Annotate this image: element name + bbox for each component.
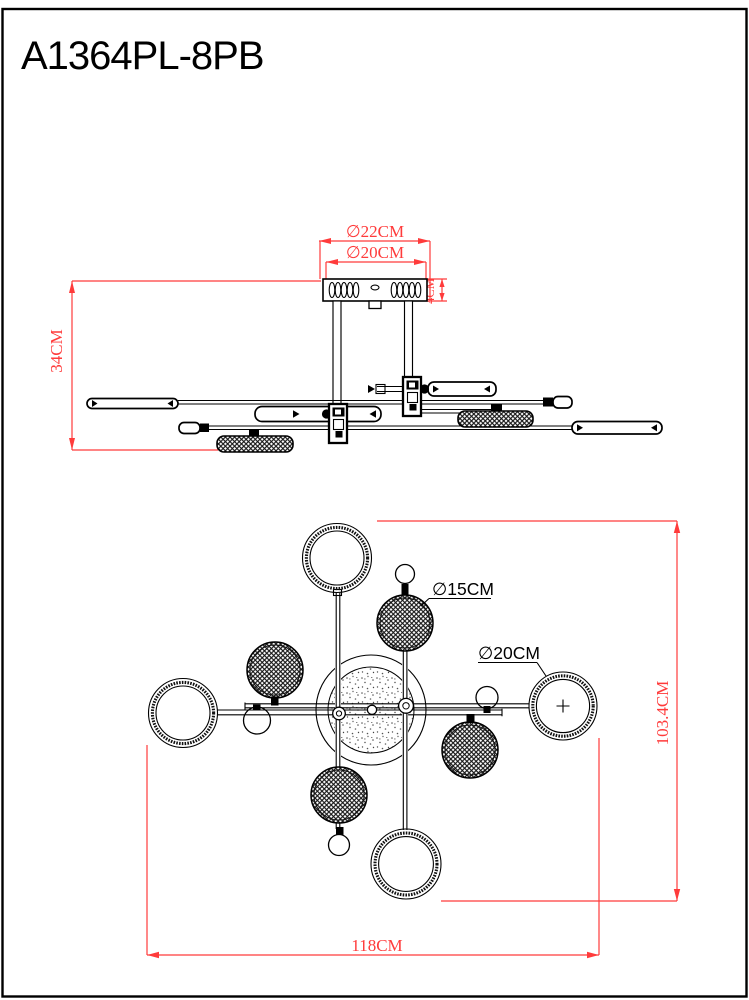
ring-top [303,524,372,593]
dim-plan-height-label: 103.4CM [653,681,672,746]
label-mesh-diameter: ∅15CM [432,579,494,599]
mesh-left-knob [271,697,279,706]
leader-ring-diameter [478,663,546,677]
dim-plan-width-label: 118CM [351,936,402,955]
ring-left [149,679,218,748]
side-view-dimensions: ∅22CM ∅20CM 4CM 34CM [47,222,447,450]
ring-center-mark [557,700,570,713]
dim-canopy-inner-label: ∅20CM [346,243,404,262]
drawing-page: A1364PL-8PB ∅22CM ∅20CM 4CM 34CM [0,0,749,1000]
side-view: ∅22CM ∅20CM 4CM 34CM [47,222,662,452]
side-hub-left [322,404,347,443]
leader-mesh-diameter [421,599,491,607]
dim-drop-label: 34CM [47,329,66,372]
label-ring-diameter: ∅20CM [478,643,540,663]
dim-canopy-outer-label: ∅22CM [346,222,404,241]
ring-right [529,672,597,740]
side-stem-right [405,301,413,378]
plan-labels: ∅15CM ∅20CM [421,579,546,676]
technical-drawing: A1364PL-8PB ∅22CM ∅20CM 4CM 34CM [0,0,749,1000]
ring-bottom [371,829,441,899]
canopy-tab [369,301,381,309]
plan-view: ∅15CM ∅20CM 103.4CM 118CM [147,521,680,958]
side-hub-right [403,377,429,416]
mesh-right-knob [467,714,475,723]
model-number: A1364PL-8PB [21,34,264,78]
side-stem-left [333,301,341,405]
